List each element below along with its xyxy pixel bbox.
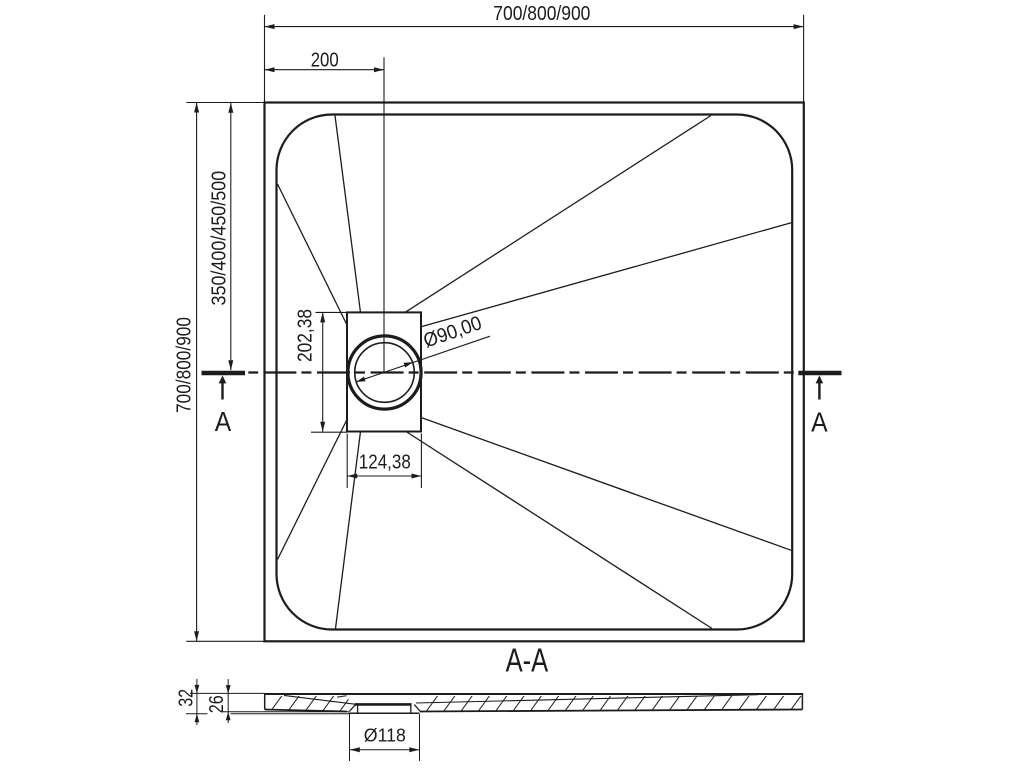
svg-text:A: A [811,407,828,438]
svg-text:200: 200 [311,49,339,71]
svg-text:Ø118: Ø118 [364,724,406,745]
svg-text:A-A: A-A [506,642,549,679]
svg-text:124,38: 124,38 [359,452,411,474]
svg-text:A: A [215,406,232,437]
svg-text:700/800/900: 700/800/900 [174,317,196,413]
svg-text:700/800/900: 700/800/900 [493,3,590,25]
svg-text:26: 26 [206,695,228,713]
svg-text:350/400/450/500: 350/400/450/500 [208,171,230,306]
svg-text:32: 32 [175,689,197,707]
svg-text:202,38: 202,38 [295,309,317,362]
